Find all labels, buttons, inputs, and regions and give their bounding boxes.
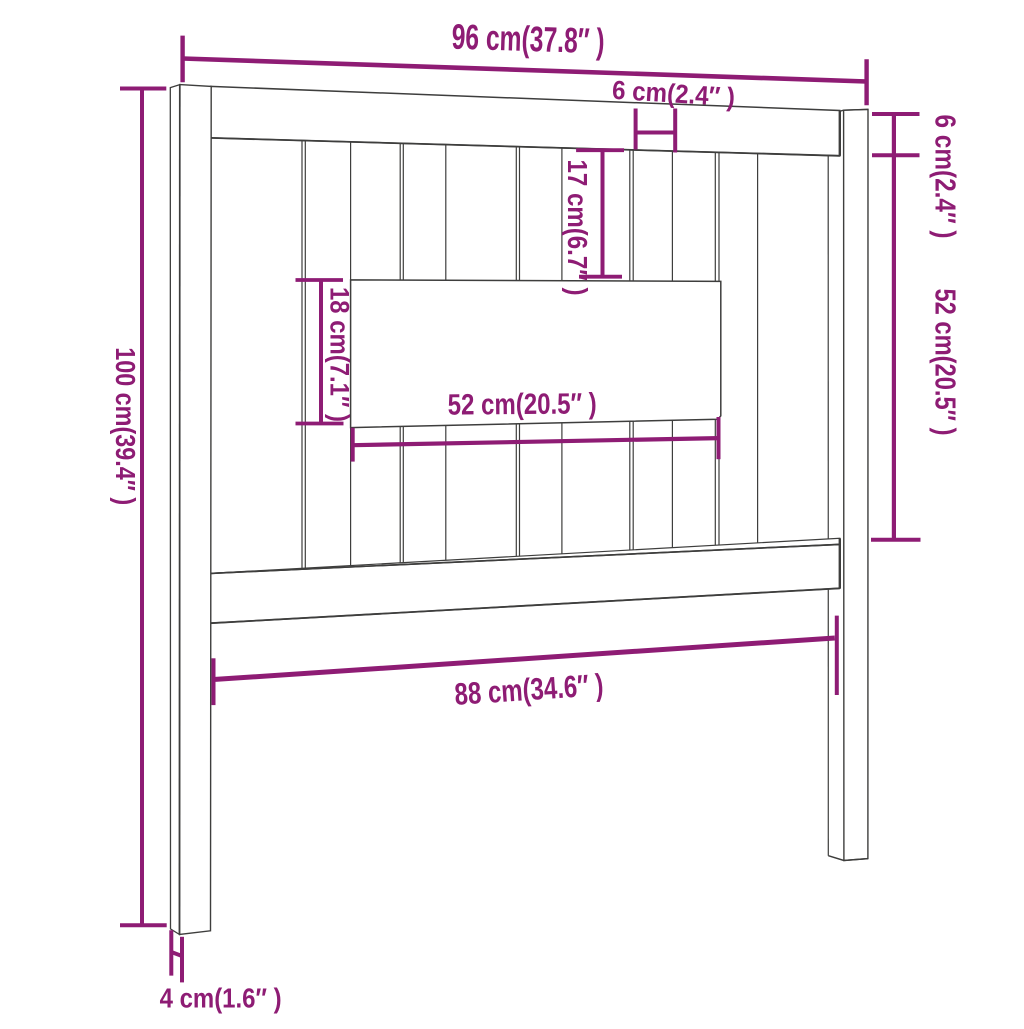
svg-text:52 cm(20.5″ ): 52 cm(20.5″ ) xyxy=(448,387,597,421)
svg-text:100 cm(39.4″ ): 100 cm(39.4″ ) xyxy=(110,347,141,505)
svg-text:52 cm(20.5″ ): 52 cm(20.5″ ) xyxy=(929,289,961,436)
svg-text:96 cm(37.8″ ): 96 cm(37.8″ ) xyxy=(451,17,605,62)
svg-text:4 cm(1.6″ ): 4 cm(1.6″ ) xyxy=(160,983,282,1014)
svg-text:6 cm(2.4″ ): 6 cm(2.4″ ) xyxy=(929,115,961,239)
svg-text:18 cm(7.1″ ): 18 cm(7.1″ ) xyxy=(325,287,355,422)
svg-text:17 cm(6.7″ ): 17 cm(6.7″ ) xyxy=(562,160,593,296)
